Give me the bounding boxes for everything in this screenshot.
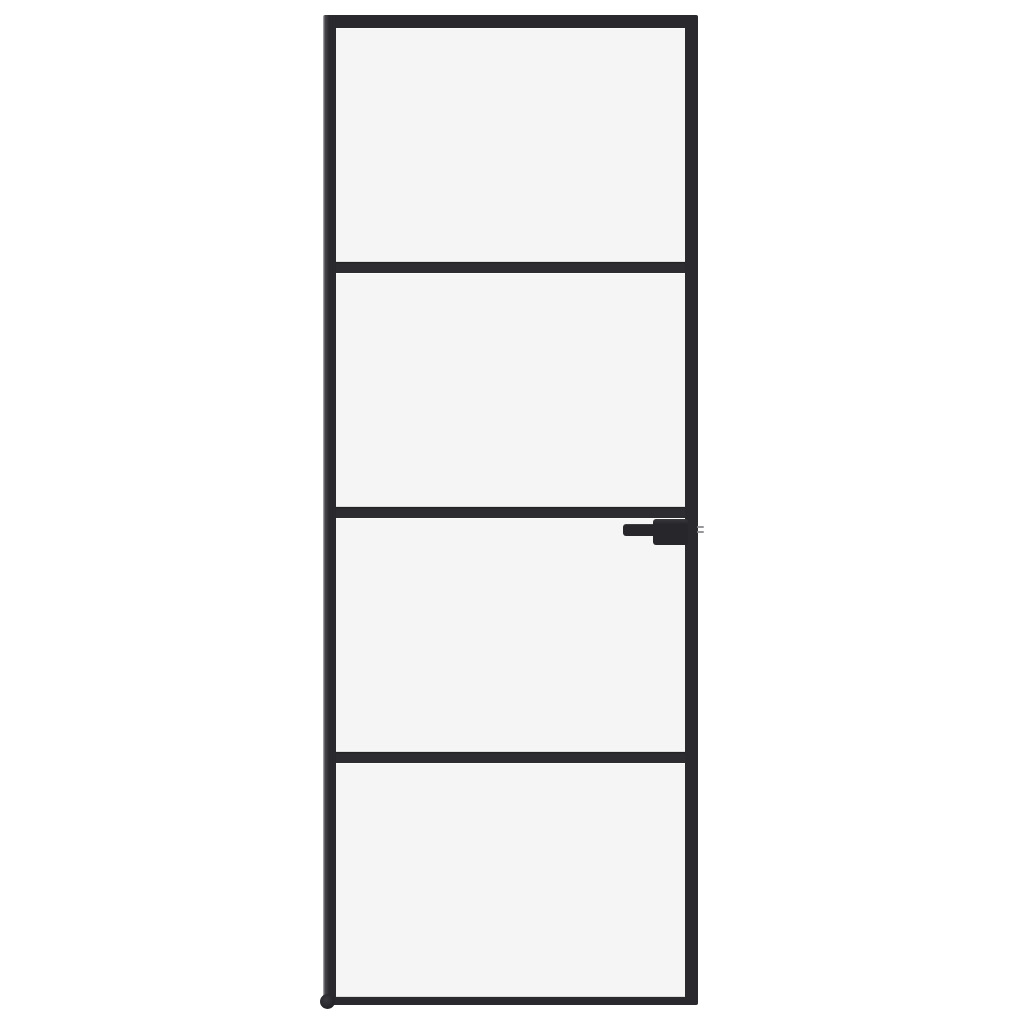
door-divider-bar-3 — [336, 752, 685, 763]
door-latch-line-bottom — [697, 531, 704, 533]
glass-door — [323, 15, 698, 1005]
door-latch-bolt — [697, 526, 704, 533]
door-divider-bar-2 — [336, 507, 685, 518]
product-photo-canvas — [0, 0, 1024, 1024]
door-glass-panel-1 — [336, 28, 685, 262]
door-glass-panel-3 — [336, 518, 685, 752]
door-latch-line-top — [697, 526, 704, 528]
door-glass-panel-4 — [336, 763, 685, 997]
door-divider-bar-1 — [336, 262, 685, 273]
door-glass-panel-2 — [336, 273, 685, 507]
door-floor-pivot — [320, 994, 335, 1009]
